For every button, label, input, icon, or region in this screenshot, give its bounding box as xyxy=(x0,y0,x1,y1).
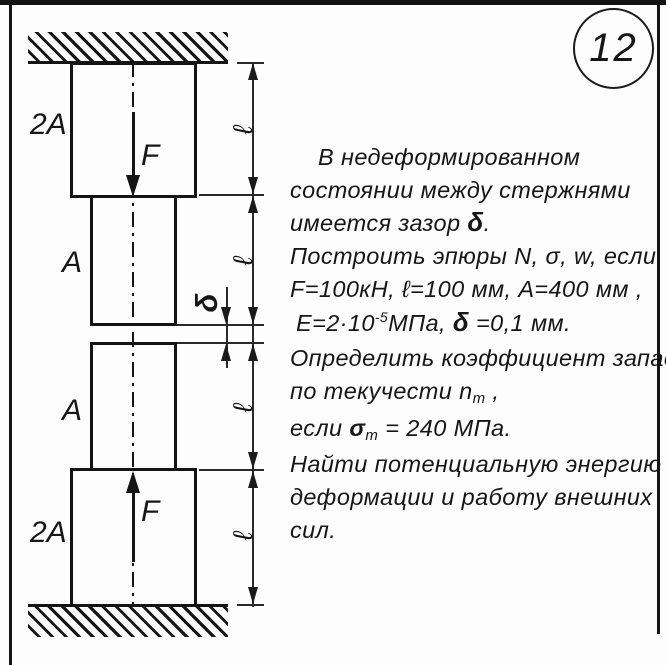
text-line: F=100кН, ℓ=100 мм, А=400 мм , xyxy=(290,273,662,306)
length-label-3: ℓ xyxy=(226,391,260,425)
text-line: Определить коэффициент запаса xyxy=(290,342,662,375)
force-top-arrow-shaft xyxy=(132,112,135,176)
dimension-arrow-icon xyxy=(248,307,258,324)
section-label-a-upper: A xyxy=(62,248,82,278)
force-bottom-arrow-icon xyxy=(126,471,140,493)
text-line: если σт = 240 МПа. xyxy=(290,412,662,449)
length-label-2: ℓ xyxy=(226,244,260,278)
text-line: Построить эпюры N, σ, w, если xyxy=(290,240,662,273)
frame-left-border xyxy=(9,0,12,665)
text-line: Е=2·10-5МПа, δ =0,1 мм. xyxy=(290,306,662,343)
force-label-bottom: F xyxy=(141,497,159,527)
gap-dimension-arrow-icon xyxy=(221,344,231,361)
dimension-arrow-icon xyxy=(248,344,258,361)
dimension-arrow-icon xyxy=(248,587,258,604)
text-line: В недеформированном xyxy=(290,141,662,174)
dimension-arrow-icon xyxy=(248,196,258,213)
extension-line-gap-upper xyxy=(177,324,264,326)
dimension-arrow-icon xyxy=(248,177,258,194)
section-label-a-lower: A xyxy=(62,396,82,426)
force-label-top: F xyxy=(141,141,159,171)
section-label-2a-bottom: 2A xyxy=(30,518,67,548)
gap-label-delta: δ xyxy=(189,285,225,321)
force-top-arrow-icon xyxy=(126,175,140,197)
force-bottom-arrow-shaft xyxy=(132,492,135,562)
frame-top-border xyxy=(0,0,666,5)
text-line: по текучести nт , xyxy=(290,375,662,412)
dimension-arrow-icon xyxy=(248,63,258,80)
text-line: имеется зазор δ. xyxy=(290,206,662,240)
problem-sheet: 12 2A A A 2A F F ℓ ℓ ℓ ℓ δ В недеформиро… xyxy=(0,0,666,665)
dimension-arrow-icon xyxy=(248,452,258,469)
problem-number-badge: 12 xyxy=(573,8,654,89)
text-line: сил. xyxy=(290,514,662,547)
text-line: Найти потенциальную энергию xyxy=(290,448,662,481)
dimension-arrow-icon xyxy=(248,471,258,488)
ceiling-support-hatch xyxy=(28,32,228,62)
problem-number: 12 xyxy=(589,26,638,71)
section-label-2a-top: 2A xyxy=(30,110,67,140)
length-label-1: ℓ xyxy=(226,113,260,147)
text-line: состоянии между стержнями xyxy=(290,174,662,207)
floor-support-hatch xyxy=(28,607,228,637)
length-label-4: ℓ xyxy=(226,519,260,553)
text-line: деформации и работу внешних xyxy=(290,481,662,514)
extension-line-bottom xyxy=(237,604,264,606)
problem-statement: В недеформированном состоянии между стер… xyxy=(290,141,662,546)
